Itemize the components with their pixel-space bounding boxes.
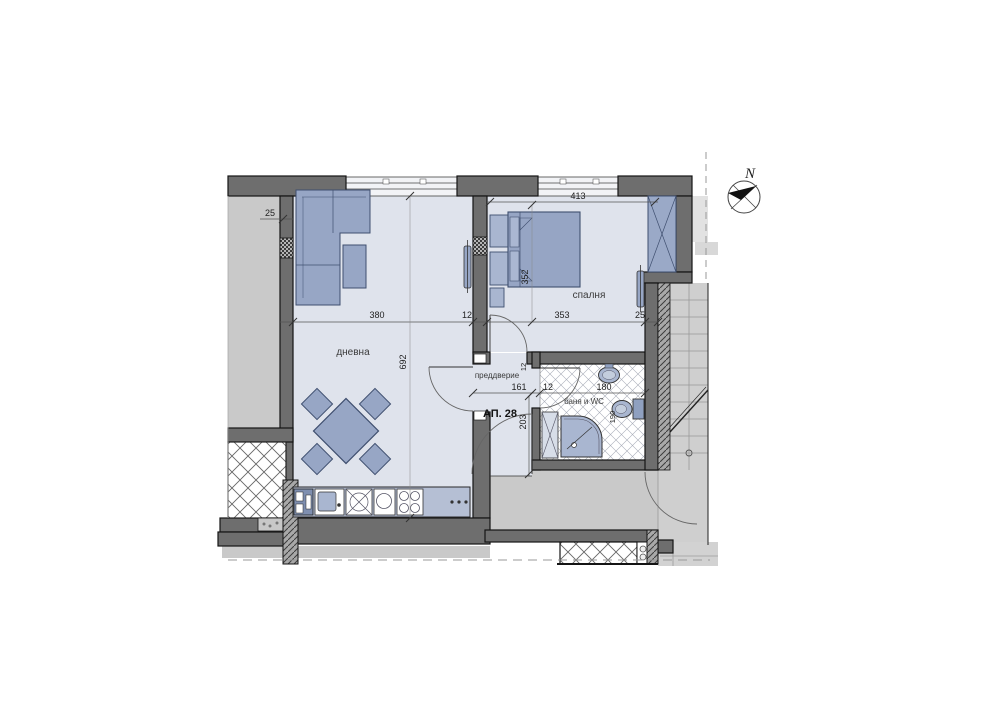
dim-partition-thickness: 12 — [462, 310, 472, 320]
neighbor-area-left — [228, 196, 280, 428]
apartment-number-label: АП. 28 — [483, 408, 517, 420]
dim-bedroom-top-width: 413 — [570, 191, 585, 201]
bedroom-label: спалня — [573, 290, 606, 301]
dim-wc-width: 190 — [608, 411, 617, 424]
faucet — [337, 503, 341, 507]
wall-partition-living-bedroom — [473, 196, 487, 353]
corridor-floor — [490, 470, 658, 530]
hall-label: преддверие — [475, 371, 520, 380]
living-room-label: дневна — [336, 347, 370, 358]
window-mullion — [420, 179, 426, 184]
wall-top-right — [618, 176, 692, 196]
dim-hall-wall: 12 — [543, 382, 553, 392]
insulation-block-left — [280, 238, 293, 258]
nightstand — [490, 215, 508, 247]
bath-label: баня и WC — [564, 397, 604, 406]
pillow — [510, 251, 519, 281]
concrete-column-right — [647, 530, 658, 564]
wall-hall-left — [473, 412, 490, 518]
wall-top-middle — [457, 176, 538, 196]
bath-door-passage — [532, 368, 540, 408]
door-jamb — [474, 354, 486, 363]
floor-plan-canvas: 25 380 12 353 25 413 352 692 161 12 180 … — [0, 0, 1000, 707]
dim-living-width: 380 — [369, 310, 384, 320]
dim-bedroom-width: 353 — [554, 310, 569, 320]
strip-below-plan — [222, 546, 490, 558]
compass-needle — [728, 186, 756, 200]
wall-bath-left-top — [532, 352, 540, 368]
dresser — [490, 288, 504, 307]
wall-right-lower — [645, 283, 658, 470]
wall-balcony-top — [228, 428, 293, 442]
kitchen-counter — [293, 487, 470, 517]
wall-corridor-bottom — [485, 530, 658, 542]
stair-landing — [658, 470, 708, 542]
washing-machine — [374, 489, 395, 515]
floor-plan-page: 25 380 12 353 25 413 352 692 161 12 180 … — [0, 0, 1000, 707]
wall-bedroom-bottom — [527, 352, 645, 364]
shaft-hatch-bottom — [560, 542, 637, 564]
wall-bottom-left — [218, 532, 290, 546]
sink-basin — [318, 492, 336, 511]
dim-bath-width: 180 — [596, 382, 611, 392]
coffee-table — [343, 245, 366, 288]
north-label: N — [744, 166, 756, 182]
wall-right-upper — [676, 196, 692, 272]
nightstand — [490, 252, 508, 285]
window-mullion — [593, 179, 599, 184]
stair-wall-hatch — [658, 283, 670, 470]
north-compass: N — [728, 166, 760, 213]
pillow — [510, 217, 519, 247]
wall-bath-bottom — [532, 460, 658, 470]
insulation-block-partition — [473, 237, 487, 255]
basin-tap — [605, 364, 613, 368]
balcony-hatch-area — [228, 442, 286, 518]
dim-bedroom-edge: 25 — [635, 310, 645, 320]
dim-bedroom-depth: 352 — [520, 269, 530, 284]
dim-left-wall-offset: 25 — [265, 208, 275, 218]
toilet-tank — [633, 399, 644, 419]
window-mullion — [383, 179, 389, 184]
dim-bath-wall: 12 — [519, 363, 528, 371]
wall-stub-bottom-right — [658, 540, 673, 553]
dim-hall-depth: 203 — [518, 414, 528, 429]
dim-hall-width: 161 — [511, 382, 526, 392]
wall-stair-top — [640, 272, 692, 283]
window-mullion — [560, 179, 566, 184]
wall-living-bottom — [283, 518, 490, 544]
dim-living-depth: 692 — [398, 354, 408, 369]
dining-set — [301, 388, 390, 474]
gravel-box — [258, 518, 284, 531]
